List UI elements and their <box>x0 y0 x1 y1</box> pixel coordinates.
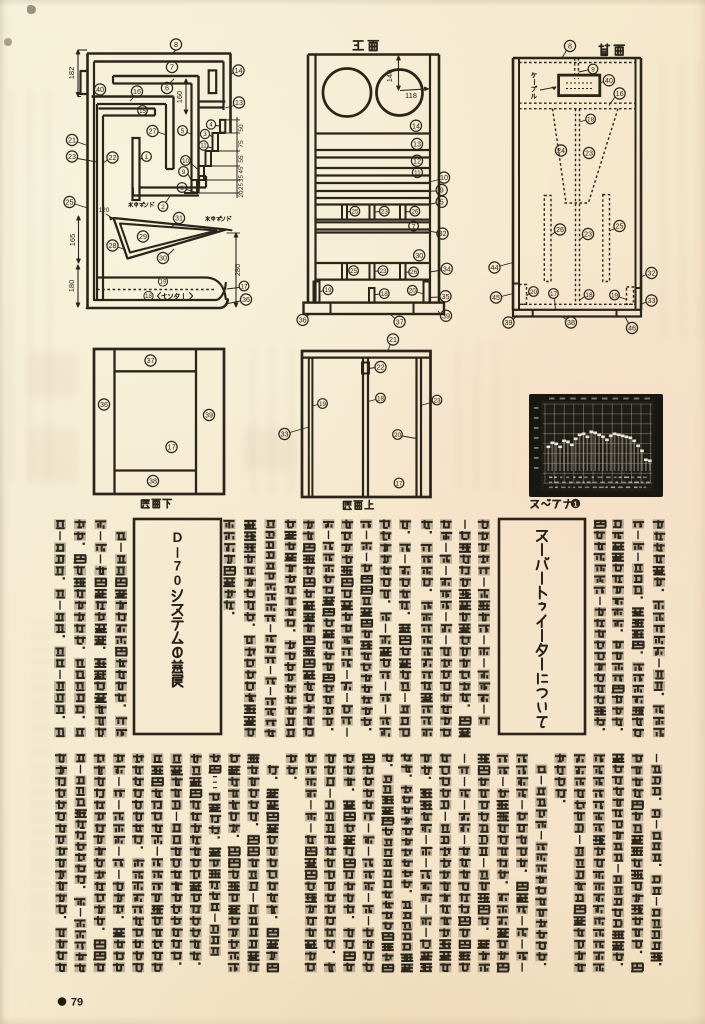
svg-text:D: D <box>173 530 183 545</box>
svg-text:7: 7 <box>174 559 182 574</box>
svg-text:79: 79 <box>71 997 83 1009</box>
svg-text:0: 0 <box>174 573 182 588</box>
